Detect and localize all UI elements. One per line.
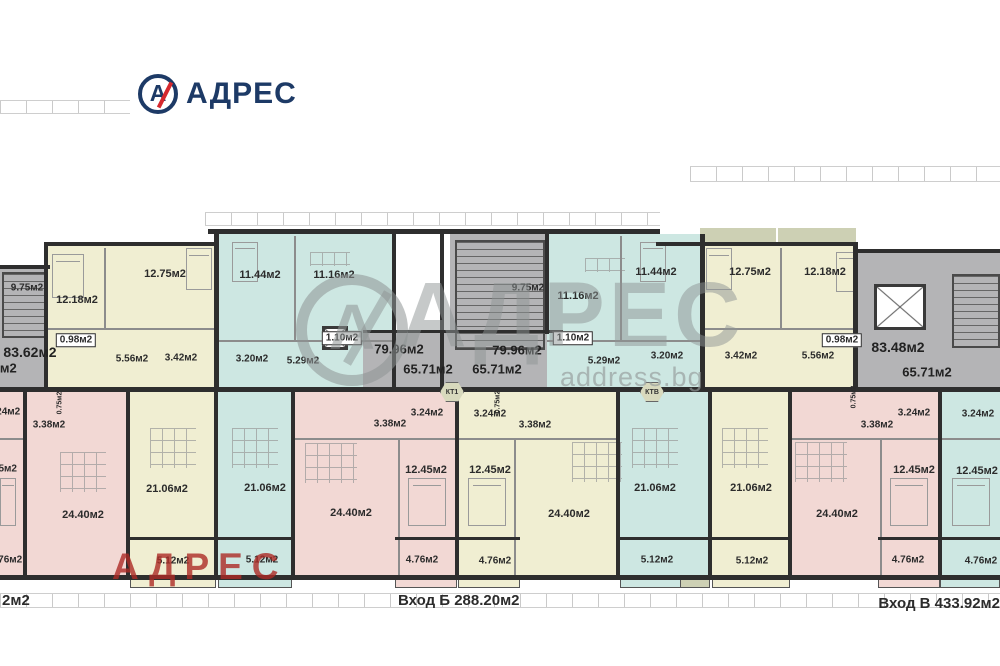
room-area-label: 5.56м2 xyxy=(116,354,148,365)
apartment-zone-olive xyxy=(700,228,776,243)
room-area-label: 12.75м2 xyxy=(729,266,771,278)
interior-partition xyxy=(940,438,1000,440)
wall xyxy=(853,242,858,390)
wall xyxy=(44,242,48,390)
wall xyxy=(395,537,457,540)
wall xyxy=(214,234,219,390)
grid-furniture-icon xyxy=(305,443,357,483)
bed-furniture-icon xyxy=(186,248,212,290)
wall xyxy=(23,392,27,578)
room-area-label: 83.62м2 xyxy=(3,344,56,360)
staircase xyxy=(455,240,545,350)
room-area-label: 3.24м2 xyxy=(898,408,930,419)
room-area-label: 21.06м2 xyxy=(730,482,772,494)
room-area-label: 12.45м2 xyxy=(469,464,511,476)
floorplan-page: А АДРЕС КТ1КТВ9.75м212.18м212.75м211.44м… xyxy=(0,0,1000,666)
room-area-label: 4.76м2 xyxy=(406,555,438,566)
room-area-label: 1.10м2 xyxy=(553,331,593,345)
wall xyxy=(291,392,295,578)
room-area-label: 12.75м2 xyxy=(144,268,186,280)
room-area-label: 5.12м2 xyxy=(736,556,768,567)
room-area-label: 3.38м2 xyxy=(33,420,65,431)
room-area-label: 4.76м2 xyxy=(479,556,511,567)
room-area-label: 9.75м2 xyxy=(512,283,544,294)
interior-partition xyxy=(218,340,395,342)
bed-furniture-icon xyxy=(0,478,16,526)
grid-furniture-icon xyxy=(632,428,678,468)
grid-furniture-icon xyxy=(795,442,847,482)
grid-furniture-icon xyxy=(585,258,625,272)
wall xyxy=(455,392,459,578)
wall xyxy=(940,537,1000,540)
apartment-zone-olive xyxy=(778,228,856,243)
room-area-label: 5.29м2 xyxy=(287,356,319,367)
wall xyxy=(616,392,620,578)
interior-partition xyxy=(790,438,940,440)
room-area-label: 12.18м2 xyxy=(56,294,98,306)
red-watermark: АДРЕС xyxy=(112,546,288,588)
bed-furniture-icon xyxy=(408,478,446,526)
room-area-label: 0.75м2 xyxy=(851,386,858,409)
room-area-label: 12.45м2 xyxy=(0,464,17,475)
room-area-label: 9.75м2 xyxy=(11,283,43,294)
room-area-label: 3.38м2 xyxy=(861,420,893,431)
interior-partition xyxy=(780,248,782,330)
room-area-label: 3.24м2 xyxy=(962,409,994,420)
room-area-label: 3.38м2 xyxy=(374,419,406,430)
room-area-label: 0.98м2 xyxy=(822,333,862,347)
room-area-label: 24.40м2 xyxy=(548,508,590,520)
entrance-b-label: Вход Б 288.20м2 xyxy=(398,592,520,609)
room-area-label: 3.38м2 xyxy=(519,420,551,431)
bed-furniture-icon xyxy=(468,478,506,526)
interior-partition xyxy=(514,440,516,576)
room-area-label: 65.71м2 xyxy=(0,361,17,376)
interior-partition xyxy=(457,438,618,440)
interior-partition xyxy=(398,440,400,576)
bed-furniture-icon xyxy=(890,478,928,526)
wall xyxy=(545,234,549,334)
dimension-ruler xyxy=(0,100,130,114)
room-area-label: 3.20м2 xyxy=(651,351,683,362)
wall xyxy=(218,537,292,540)
room-area-label: 0.75м2 xyxy=(495,391,502,414)
wall xyxy=(855,249,1000,253)
grid-furniture-icon xyxy=(60,452,106,492)
room-area-label: 65.71м2 xyxy=(902,365,951,380)
interior-partition xyxy=(48,328,218,330)
room-area-label: 11.16м2 xyxy=(557,290,598,302)
bed-furniture-icon xyxy=(952,478,990,526)
room-area-label: 11.16м2 xyxy=(313,269,354,281)
room-area-label: 3.42м2 xyxy=(725,351,757,362)
room-area-label: 79.96м2 xyxy=(492,343,541,358)
room-area-label: 24.40м2 xyxy=(62,509,104,521)
wall xyxy=(0,265,50,269)
grid-furniture-icon xyxy=(572,442,622,482)
interior-partition xyxy=(0,438,25,440)
grid-furniture-icon xyxy=(722,428,768,468)
room-area-label: 24.40м2 xyxy=(330,507,372,519)
wall xyxy=(458,537,520,540)
wall xyxy=(130,537,216,540)
room-area-label: 21.06м2 xyxy=(634,482,676,494)
dimension-ruler xyxy=(205,212,660,226)
room-area-label: 11.44м2 xyxy=(635,266,676,278)
room-area-label: 5.56м2 xyxy=(802,351,834,362)
interior-partition xyxy=(620,236,622,340)
wall xyxy=(712,537,790,540)
watermark-domain: address.bg xyxy=(560,362,704,393)
wall xyxy=(878,537,940,540)
room-area-label: 12.45м2 xyxy=(956,465,998,477)
room-area-label: 65.71м2 xyxy=(472,362,521,377)
room-area-label: 24.40м2 xyxy=(816,508,858,520)
bed-furniture-icon xyxy=(706,248,732,290)
room-area-label: 4.76м2 xyxy=(0,555,22,566)
interior-partition xyxy=(702,328,855,330)
wall xyxy=(708,392,712,578)
room-area-label: 11.44м2 xyxy=(239,269,280,281)
elevator-shaft-icon xyxy=(874,284,926,330)
room-area-label: 3.42м2 xyxy=(165,353,197,364)
room-area-label: 0.98м2 xyxy=(56,333,96,347)
wall xyxy=(656,242,858,246)
wall xyxy=(392,229,396,390)
staircase xyxy=(952,274,1000,348)
room-area-label: 12.45м2 xyxy=(405,464,447,476)
room-area-label: 1.10м2 xyxy=(322,331,362,345)
room-area-label: 12.45м2 xyxy=(893,464,935,476)
room-area-label: 3.20м2 xyxy=(236,354,268,365)
interior-partition xyxy=(293,438,457,440)
room-area-label: 4.76м2 xyxy=(892,555,924,566)
grid-furniture-icon xyxy=(310,252,350,266)
entrance-v-label: Вход В 433.92м2 xyxy=(878,595,1000,612)
grid-furniture-icon xyxy=(232,428,278,468)
wall xyxy=(788,392,792,578)
room-area-label: 21.06м2 xyxy=(244,482,286,494)
room-area-label: 21.06м2 xyxy=(146,483,188,495)
wall xyxy=(44,242,216,246)
room-area-label: 79.96м2 xyxy=(374,342,423,357)
room-area-label: 3.24м2 xyxy=(0,407,20,418)
room-area-label: 83.48м2 xyxy=(871,339,924,355)
wall xyxy=(938,392,942,578)
wall xyxy=(208,229,660,234)
interior-partition xyxy=(294,236,296,340)
room-area-label: 4.76м2 xyxy=(965,556,997,567)
bed-furniture-icon xyxy=(52,254,84,298)
interior-partition xyxy=(104,248,106,330)
room-area-label: 5.12м2 xyxy=(641,555,673,566)
dimension-ruler xyxy=(690,166,1000,182)
room-area-label: 0.75м2 xyxy=(57,392,64,415)
interior-partition xyxy=(880,440,882,576)
grid-furniture-icon xyxy=(150,428,196,468)
wall xyxy=(620,537,710,540)
room-area-label: 65.71м2 xyxy=(403,362,452,377)
room-area-label: 3.24м2 xyxy=(411,408,443,419)
room-area-label: 12.18м2 xyxy=(804,266,846,278)
entrance-left-partial-label: 2м2 xyxy=(2,592,30,609)
